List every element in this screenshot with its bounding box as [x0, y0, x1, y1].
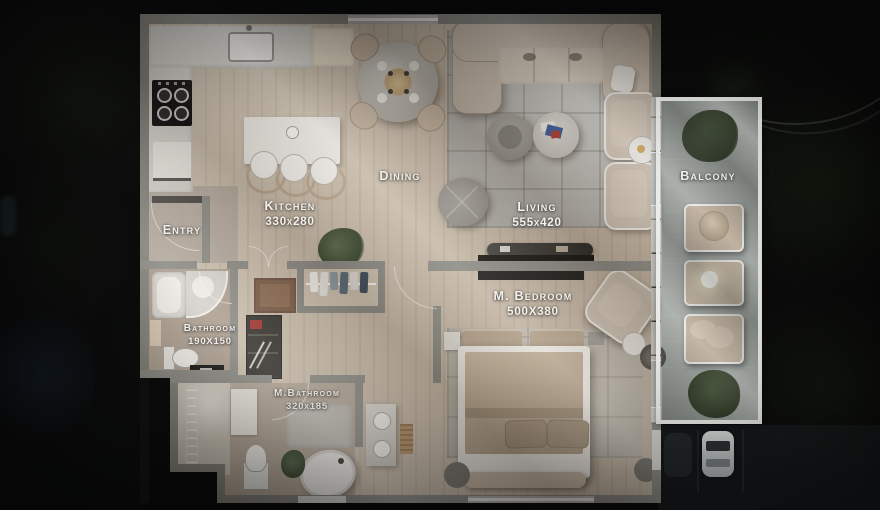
mbathroom-wall-top: [310, 375, 365, 383]
room-name: M. Bedroom: [494, 290, 573, 304]
foot-pillow: [505, 419, 548, 448]
room-name: Balcony: [680, 170, 735, 184]
kitchen-faucet: [246, 25, 252, 31]
bar-stool-seat: [280, 154, 308, 182]
balcony-railing: [656, 97, 762, 424]
closet-chest: [254, 278, 296, 313]
floor-pouf: [444, 462, 470, 488]
sofa-pillow: [523, 53, 536, 61]
room-dimensions: 500X380: [494, 306, 573, 318]
floor-plan-scene: Entry Kitchen 330x280 Dining Living 555x…: [0, 0, 880, 510]
bathtub-basin: [157, 277, 181, 313]
sofa-seat-cushions: [498, 46, 604, 84]
bedroom-wall-left: [433, 306, 441, 383]
towel-ladder: [186, 386, 198, 464]
parked-car-white: [702, 431, 734, 477]
interior-wall: [140, 261, 197, 269]
shelf-line: [248, 334, 278, 336]
closet-wall: [297, 306, 385, 313]
duvet-fold: [465, 408, 583, 418]
exterior-wall-right-top: [652, 14, 661, 104]
parked-car-dark: [664, 433, 692, 477]
red-storage-box: [250, 320, 262, 329]
kitchen-sink: [228, 32, 274, 62]
nightstand: [588, 332, 604, 345]
coffee-table-tray: [498, 125, 522, 149]
room-dimensions: 320x185: [274, 401, 340, 412]
entry-door-leaf: [152, 196, 202, 203]
window-right-lower: [652, 430, 661, 470]
bed-bench: [464, 472, 586, 488]
pool-water: [0, 300, 95, 450]
living-bedroom-divider-wall: [428, 261, 661, 271]
room-name: Entry: [163, 224, 202, 238]
kitchen-tall-cabinet: [312, 28, 354, 66]
magazine-red: [551, 130, 561, 138]
mbath-toilet-bowl: [245, 444, 267, 472]
bedroom-dresser: [478, 271, 584, 280]
dining-label: Dining: [379, 170, 420, 184]
stove-burner: [157, 88, 172, 103]
mbathroom-wall-top: [170, 375, 272, 383]
exterior-notch: [149, 378, 170, 503]
exterior-notch: [170, 472, 217, 503]
hanging-clothes: [309, 272, 318, 292]
car-windshield: [706, 441, 730, 451]
side-table-white: [610, 64, 636, 93]
room-name: Kitchen: [265, 200, 316, 214]
dining-candle: [404, 71, 409, 76]
stove-burner: [157, 106, 172, 121]
console-decor: [556, 246, 568, 252]
tree-canopy: [0, 150, 130, 340]
island-faucet: [286, 126, 299, 139]
exterior-wall-left: [140, 14, 149, 378]
parking-line: [697, 430, 699, 492]
exterior-wall-left-lower: [170, 370, 178, 472]
armchair-cushion: [611, 170, 647, 217]
console-decor: [500, 246, 510, 252]
gold-decor: [637, 145, 645, 153]
mbathroom-wall-east: [355, 383, 363, 447]
shower-mat: [231, 389, 257, 435]
bathroom-label: Bathroom 190X150: [184, 323, 236, 347]
kitchen-label: Kitchen 330x280: [265, 200, 316, 228]
vanity-sink: [373, 412, 391, 430]
balcony-label: Balcony: [680, 170, 735, 184]
entry-label: Entry: [163, 224, 202, 238]
stove-burner: [174, 106, 189, 121]
window-bedroom-bottom: [468, 496, 594, 503]
bar-stool-seat: [250, 151, 278, 179]
room-dimensions: 330x280: [265, 216, 316, 228]
vanity-sink: [373, 440, 391, 458]
parking-line: [742, 430, 744, 492]
dining-candle: [404, 89, 409, 94]
room-name: Bathroom: [184, 323, 236, 334]
dining-candle: [388, 89, 393, 94]
mbedroom-label: M. Bedroom 500X380: [494, 290, 573, 318]
hanging-clothes: [319, 272, 328, 296]
room-dimensions: 555x420: [512, 217, 561, 229]
stove-burner: [174, 88, 189, 103]
entry-wall-stub: [202, 196, 210, 263]
tub-faucet: [338, 458, 344, 464]
room-name: Living: [512, 201, 561, 215]
sofa-pillow: [569, 53, 582, 61]
hanging-clothes: [330, 272, 339, 290]
wooden-bath-mat: [400, 424, 413, 454]
hanging-clothes: [350, 272, 359, 290]
room-name: M.Bathroom: [274, 388, 340, 399]
bar-stool-seat: [310, 157, 338, 185]
dining-plate: [409, 61, 419, 71]
window-top: [348, 15, 438, 24]
exterior-wall-bottom: [217, 495, 661, 503]
car-rear-window: [706, 459, 730, 467]
dining-candle: [388, 71, 393, 76]
hanging-clothes: [339, 272, 348, 294]
dining-plate: [377, 61, 387, 71]
window-glow: [0, 196, 16, 236]
dining-plate: [377, 93, 387, 103]
mbath-plant: [281, 450, 305, 478]
stove-knobs: [158, 82, 186, 85]
room-dimensions: 190X150: [184, 336, 236, 347]
hanging-clothes: [360, 272, 369, 293]
window-mbath-bottom: [298, 496, 346, 503]
bathroom-cabinet: [150, 320, 161, 346]
mbathroom-label: M.Bathroom 320x185: [274, 388, 340, 412]
dining-plate: [409, 93, 419, 103]
sofa-seam: [568, 48, 570, 82]
room-name: Dining: [379, 170, 420, 184]
living-label: Living 555x420: [512, 201, 561, 229]
kitchen-appliance-panel: [153, 142, 191, 181]
foot-pillow: [547, 419, 590, 448]
